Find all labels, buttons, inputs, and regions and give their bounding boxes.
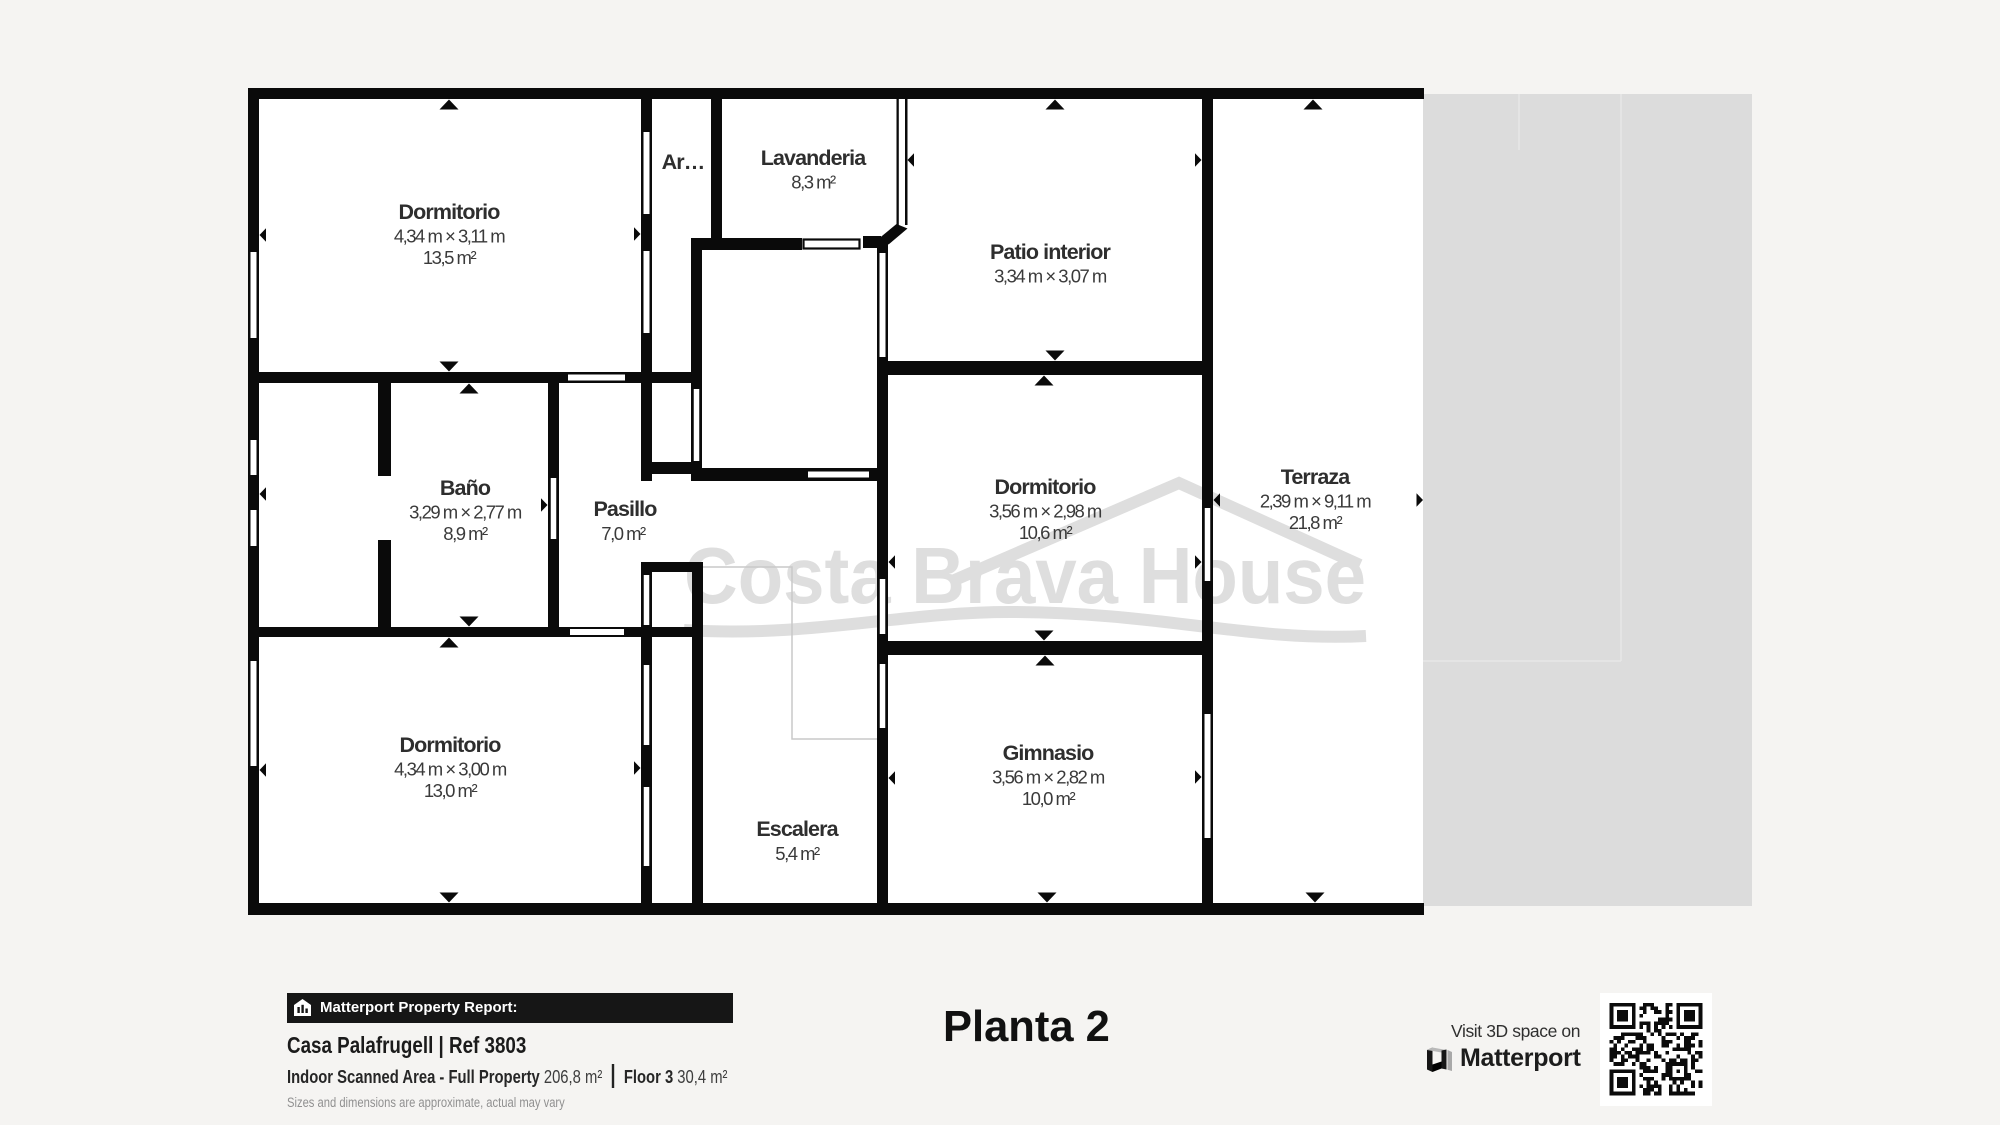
svg-text:Dormitorio: Dormitorio [400, 733, 502, 757]
svg-text:8,3 m²: 8,3 m² [791, 172, 836, 193]
svg-text:Pasillo: Pasillo [593, 497, 657, 521]
svg-text:4,34 m × 3,00 m: 4,34 m × 3,00 m [394, 759, 507, 780]
svg-text:10,0 m²: 10,0 m² [1022, 788, 1076, 809]
svg-text:3,56 m × 2,82 m: 3,56 m × 2,82 m [992, 767, 1105, 788]
svg-text:21,8 m²: 21,8 m² [1289, 512, 1343, 533]
svg-text:Terraza: Terraza [1281, 465, 1352, 489]
svg-text:7,0 m²: 7,0 m² [601, 523, 646, 544]
svg-text:13,5 m²: 13,5 m² [423, 247, 477, 268]
svg-text:Escalera: Escalera [756, 817, 839, 841]
svg-text:8,9 m²: 8,9 m² [443, 523, 488, 544]
svg-text:13,0 m²: 13,0 m² [424, 780, 478, 801]
svg-text:Gimnasio: Gimnasio [1003, 741, 1095, 765]
svg-text:3,56 m × 2,98 m: 3,56 m × 2,98 m [989, 501, 1102, 522]
svg-text:3,34 m × 3,07 m: 3,34 m × 3,07 m [994, 266, 1107, 287]
svg-text:Baño: Baño [440, 476, 491, 500]
svg-text:Ar…: Ar… [662, 150, 705, 174]
svg-text:3,29 m × 2,77 m: 3,29 m × 2,77 m [409, 502, 522, 523]
svg-text:Lavanderia: Lavanderia [761, 146, 867, 170]
svg-text:2,39 m × 9,11 m: 2,39 m × 9,11 m [1260, 491, 1371, 512]
svg-text:Dormitorio: Dormitorio [995, 475, 1097, 499]
svg-text:Patio interior: Patio interior [990, 240, 1112, 264]
svg-text:10,6 m²: 10,6 m² [1019, 522, 1073, 543]
svg-text:4,34 m × 3,11 m: 4,34 m × 3,11 m [394, 226, 505, 247]
svg-text:Dormitorio: Dormitorio [399, 200, 501, 224]
svg-text:5,4 m²: 5,4 m² [775, 843, 820, 864]
